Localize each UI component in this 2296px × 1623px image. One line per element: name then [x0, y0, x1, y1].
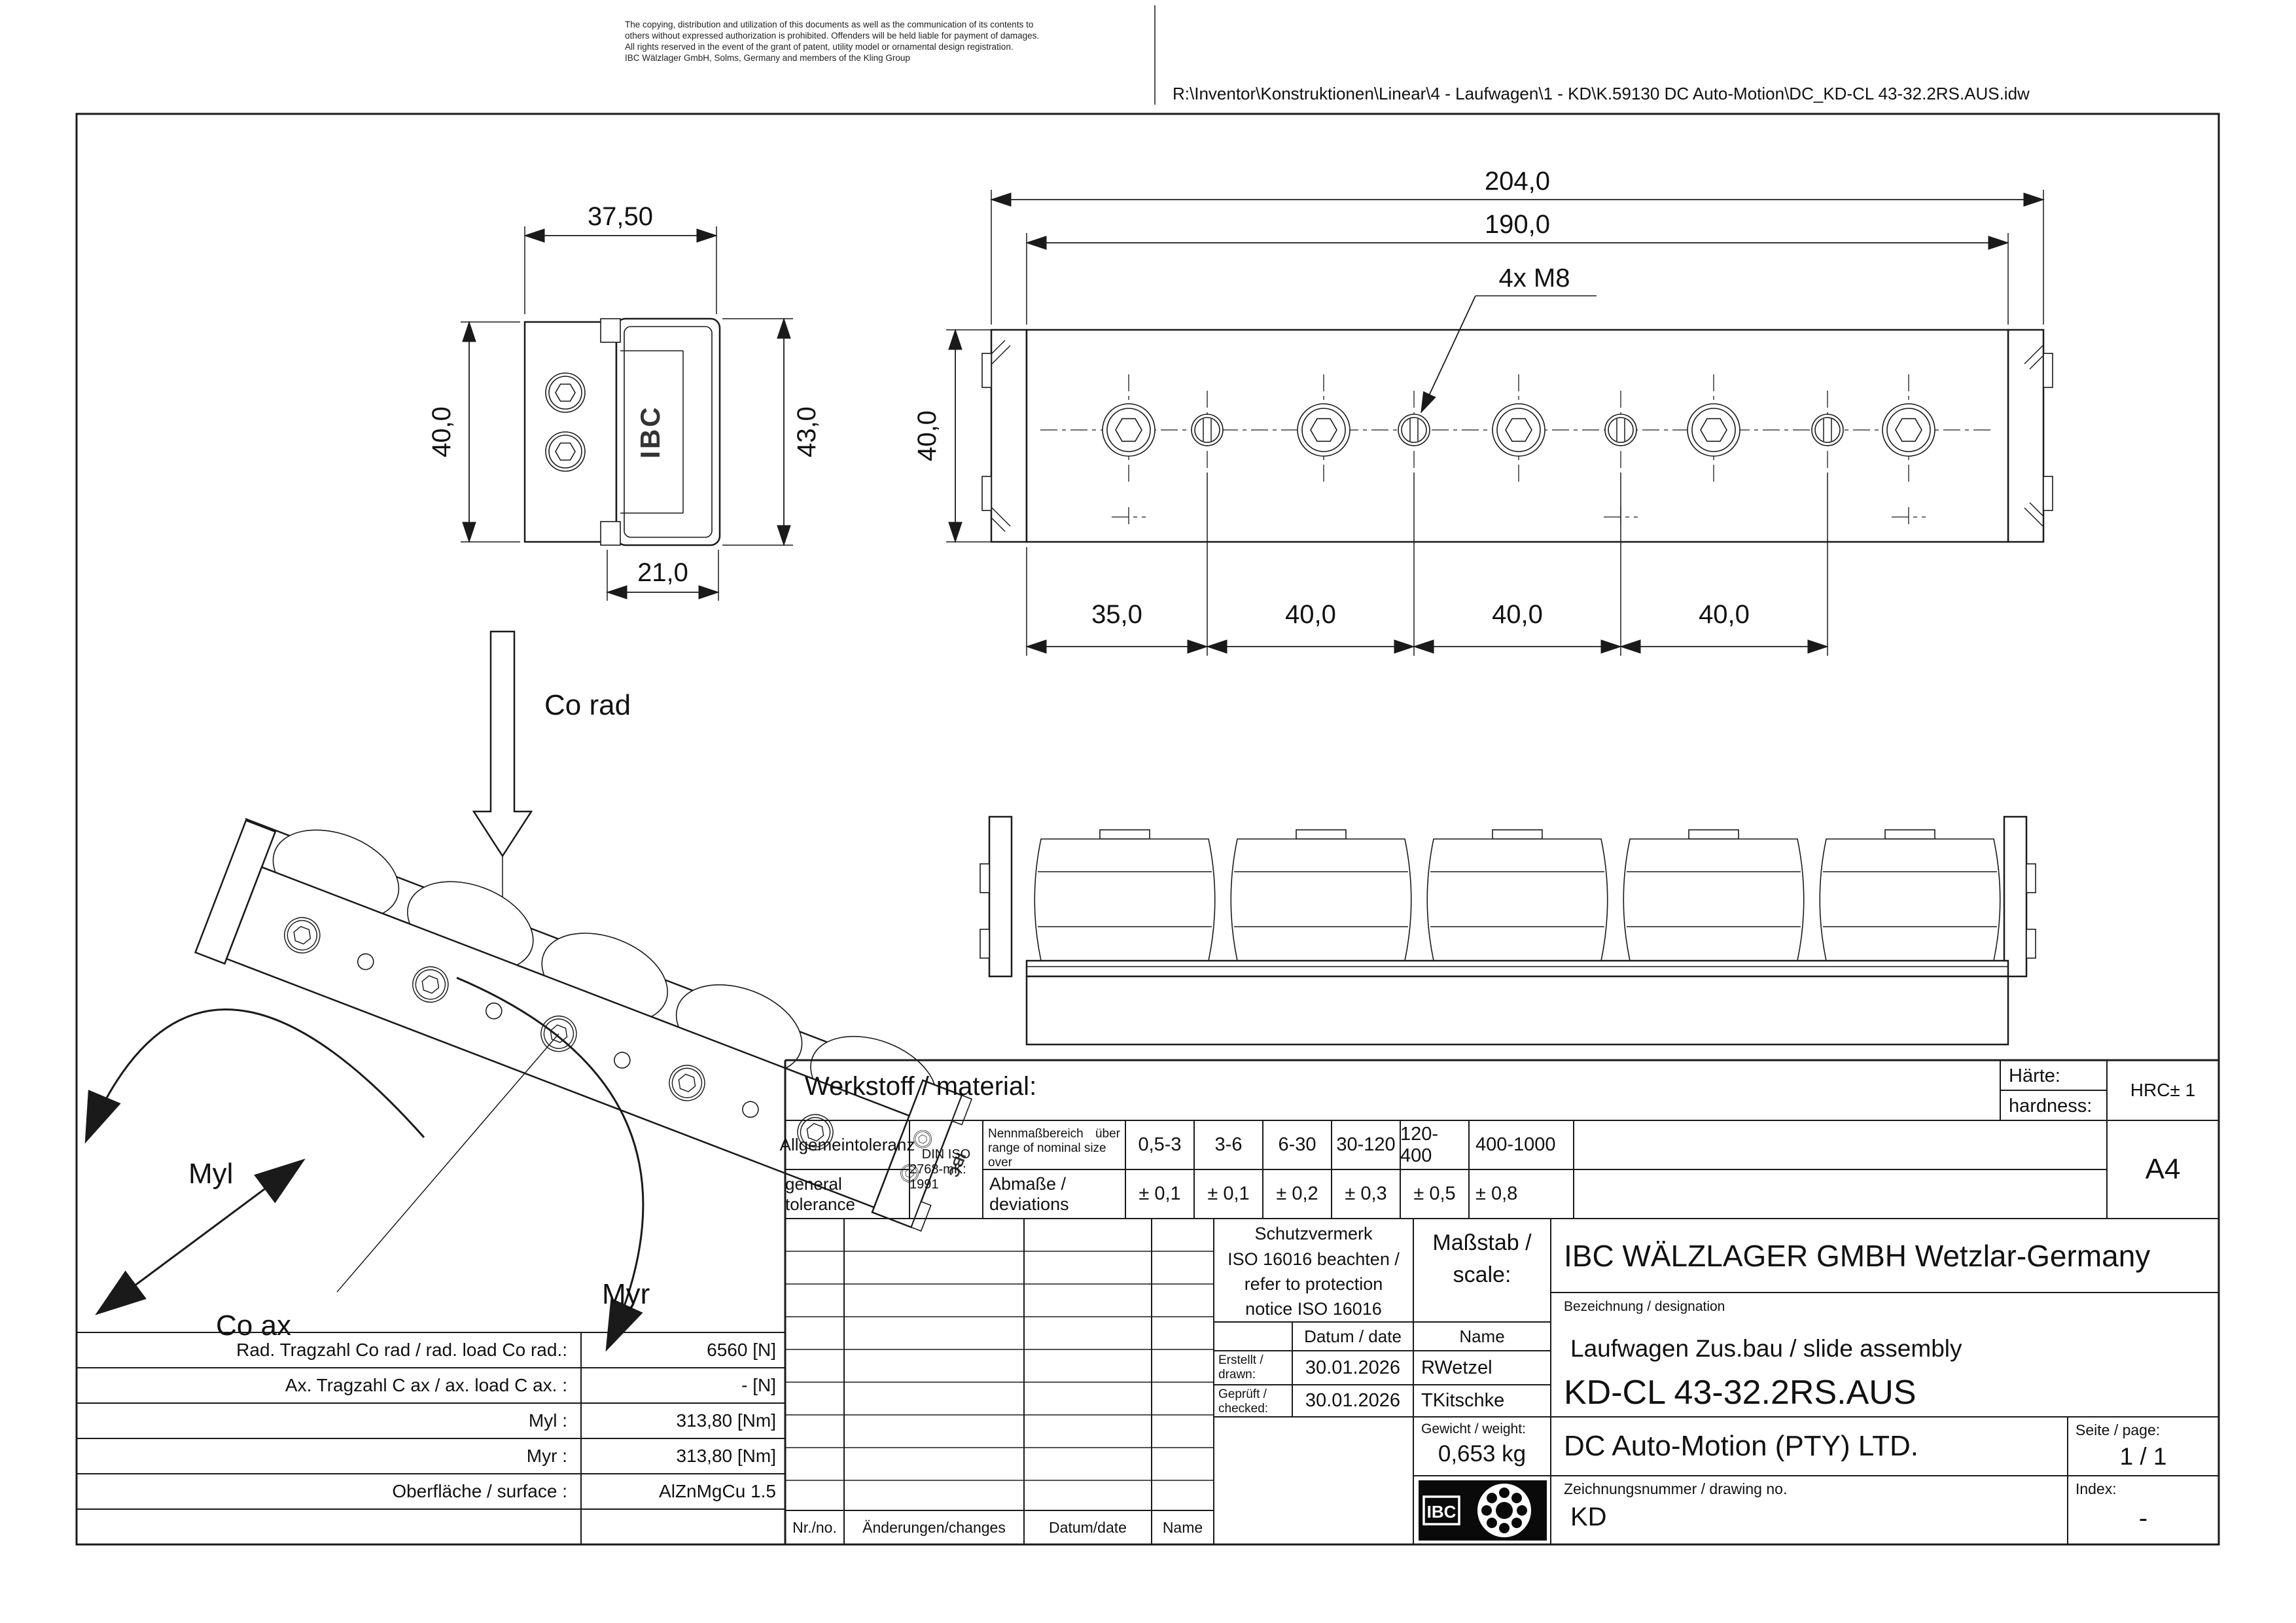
range-col: 30-120 — [1332, 1120, 1400, 1169]
dim-end-base: 21,0 — [637, 558, 688, 587]
index-value: - — [2068, 1504, 2219, 1533]
material-label: Werkstoff / material: — [805, 1072, 1036, 1101]
side-view — [980, 817, 2036, 1044]
top-view: 204,0 190,0 4x M8 40,0 35,0 — [913, 167, 2053, 656]
dim-end-height-right: 43,0 — [792, 406, 821, 457]
checked-label: Geprüft / checked: — [1218, 1387, 1268, 1416]
customer-name: DC Auto-Motion (PTY) LTD. — [1564, 1417, 2061, 1476]
drawn-label: Erstellt / drawn: — [1218, 1353, 1263, 1382]
revision-changes-header: Änderungen/changes — [844, 1510, 1024, 1544]
load-row-value: 313,80 [Nm] — [588, 1438, 776, 1474]
dim-end-height-left: 40,0 — [427, 406, 456, 457]
load-row-value: AlZnMgCu 1.5 — [588, 1474, 776, 1509]
dim-pitch-2: 40,0 — [1285, 600, 1336, 629]
dim-pitch-3: 40,0 — [1492, 600, 1543, 629]
ibc-logo-text: IBC — [1427, 1502, 1457, 1522]
load-row-value: - [N] — [588, 1368, 776, 1403]
name-header: Name — [1413, 1322, 1551, 1351]
co-rad-arrow — [474, 632, 531, 856]
general-tolerance-de: Allgemeintoleranz — [785, 1120, 910, 1169]
drawn-name: RWetzel — [1421, 1351, 1551, 1385]
deviation-col: ± 0,5 — [1400, 1169, 1469, 1219]
drawing-no-value: KD — [1570, 1503, 1607, 1532]
sheet-frame — [77, 114, 2219, 1544]
range-col: 0,5-3 — [1125, 1120, 1194, 1169]
deviation-label: Abmaße / deviations — [989, 1169, 1120, 1219]
range-col: 3-6 — [1194, 1120, 1263, 1169]
deviation-col: ± 0,2 — [1263, 1169, 1332, 1219]
ibc-logo: IBC — [1419, 1480, 1547, 1541]
checked-date: 30.01.2026 — [1292, 1385, 1413, 1417]
range-col: 6-30 — [1263, 1120, 1332, 1169]
hardness-label-de: Härte: — [2009, 1065, 2060, 1087]
company-name: IBC WÄLZLAGER GMBH Wetzlar-Germany — [1564, 1219, 2212, 1293]
deviation-col: ± 0,8 — [1475, 1169, 1574, 1219]
disclaimer-line: others without expressed authorization i… — [625, 31, 1161, 42]
myl-label: Myl — [188, 1158, 233, 1190]
part-number: KD-CL 43-32.2RS.AUS — [1564, 1373, 1916, 1412]
deviation-col: ± 0,1 — [1194, 1169, 1263, 1219]
drawing-no-label: Zeichnungsnummer / drawing no. — [1564, 1480, 1787, 1498]
thread-callout: 4x M8 — [1499, 264, 1570, 293]
end-view: IBC 37,50 40,0 43,0 21,0 — [427, 202, 821, 601]
range-col: 120-400 — [1400, 1120, 1469, 1169]
dim-pitch-1: 35,0 — [1091, 600, 1142, 629]
file-path: R:\Inventor\Konstruktionen\Linear\4 - La… — [1173, 84, 2030, 104]
hardness-label-en: hardness: — [2009, 1096, 2092, 1117]
date-header: Datum / date — [1292, 1322, 1413, 1351]
weight-label: Gewicht / weight: — [1421, 1421, 1526, 1437]
drawn-date: 30.01.2026 — [1292, 1351, 1413, 1385]
deviation-col: ± 0,1 — [1125, 1169, 1194, 1219]
myl-arrow — [86, 1009, 424, 1140]
page-value: 1 / 1 — [2068, 1443, 2219, 1471]
co-rad-label: Co rad — [544, 689, 631, 721]
disclaimer-line: The copying, distribution and utilizatio… — [625, 20, 1161, 31]
load-row-label: Rad. Tragzahl Co rad / rad. load Co rad.… — [77, 1332, 567, 1368]
dim-top-height: 40,0 — [913, 410, 942, 461]
range-col: 400-1000 — [1475, 1120, 1574, 1169]
dim-pitch-4: 40,0 — [1699, 600, 1750, 629]
load-row-label: Myl : — [77, 1403, 567, 1438]
weight-value: 0,653 kg — [1413, 1441, 1551, 1467]
deviation-col: ± 0,3 — [1332, 1169, 1400, 1219]
page-label: Seite / page: — [2075, 1421, 2160, 1439]
dim-end-width: 37,50 — [588, 202, 653, 231]
designation-value: Laufwagen Zus.bau / slide assembly — [1570, 1335, 1962, 1363]
index-label: Index: — [2075, 1480, 2117, 1498]
tolerance-standard: DIN ISO 2768-mK: 1991 — [910, 1120, 983, 1219]
dim-top-body: 190,0 — [1485, 210, 1550, 239]
load-row-value: 313,80 [Nm] — [588, 1403, 776, 1438]
drawing-sheet: IBC 37,50 40,0 43,0 21,0 — [0, 0, 2296, 1623]
load-row-label: Oberfläche / surface : — [77, 1474, 567, 1509]
myr-label: Myr — [602, 1278, 650, 1310]
load-row-label: Myr : — [77, 1438, 567, 1474]
load-row-label: Ax. Tragzahl C ax / ax. load C ax. : — [77, 1368, 567, 1403]
scale-label: Maßstab / scale: — [1413, 1227, 1551, 1292]
general-tolerance-en: general tolerance — [785, 1169, 910, 1219]
disclaimer-line: IBC Wälzlager GmbH, Solms, Germany and m… — [625, 53, 1161, 64]
revision-date-header: Datum/date — [1024, 1510, 1152, 1544]
disclaimer-line: All rights reserved in the event of the … — [625, 42, 1161, 53]
revision-name-header: Name — [1152, 1510, 1214, 1544]
revision-no-header: Nr./no. — [785, 1510, 844, 1544]
hardness-value: HRC± 1 — [2107, 1060, 2219, 1120]
copyright-disclaimer: The copying, distribution and utilizatio… — [625, 20, 1161, 64]
checked-name: TKitschke — [1421, 1385, 1551, 1417]
load-row-value: 6560 [N] — [588, 1332, 776, 1368]
molded-logo-text: IBC — [635, 405, 665, 458]
designation-label: Bezeichnung / designation — [1564, 1299, 1725, 1315]
protection-notice: Schutzvermerk ISO 16016 beachten / refer… — [1214, 1222, 1413, 1321]
nominal-range-label: Nennmaßbereich über range of nominal siz… — [988, 1127, 1120, 1170]
sheet-format: A4 — [2107, 1120, 2219, 1219]
dim-top-total: 204,0 — [1485, 167, 1550, 196]
